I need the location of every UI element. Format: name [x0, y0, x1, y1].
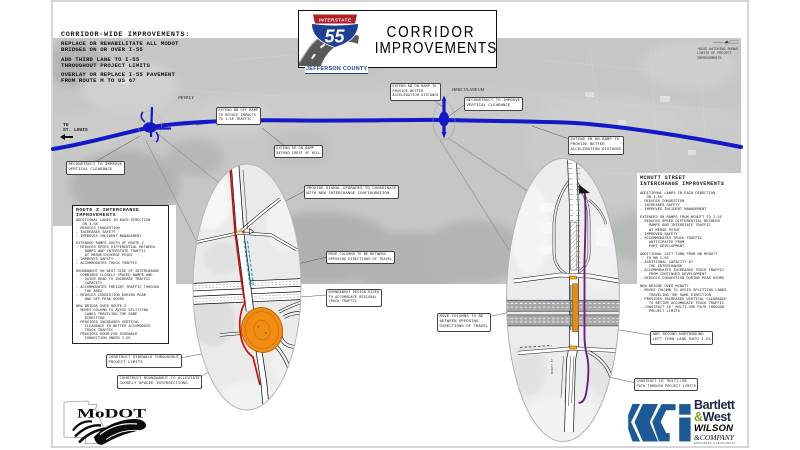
- svg-text:55: 55: [324, 27, 345, 47]
- svg-text:INTERSTATE: INTERSTATE: [319, 17, 352, 23]
- svg-text:MoDOT: MoDOT: [77, 406, 146, 421]
